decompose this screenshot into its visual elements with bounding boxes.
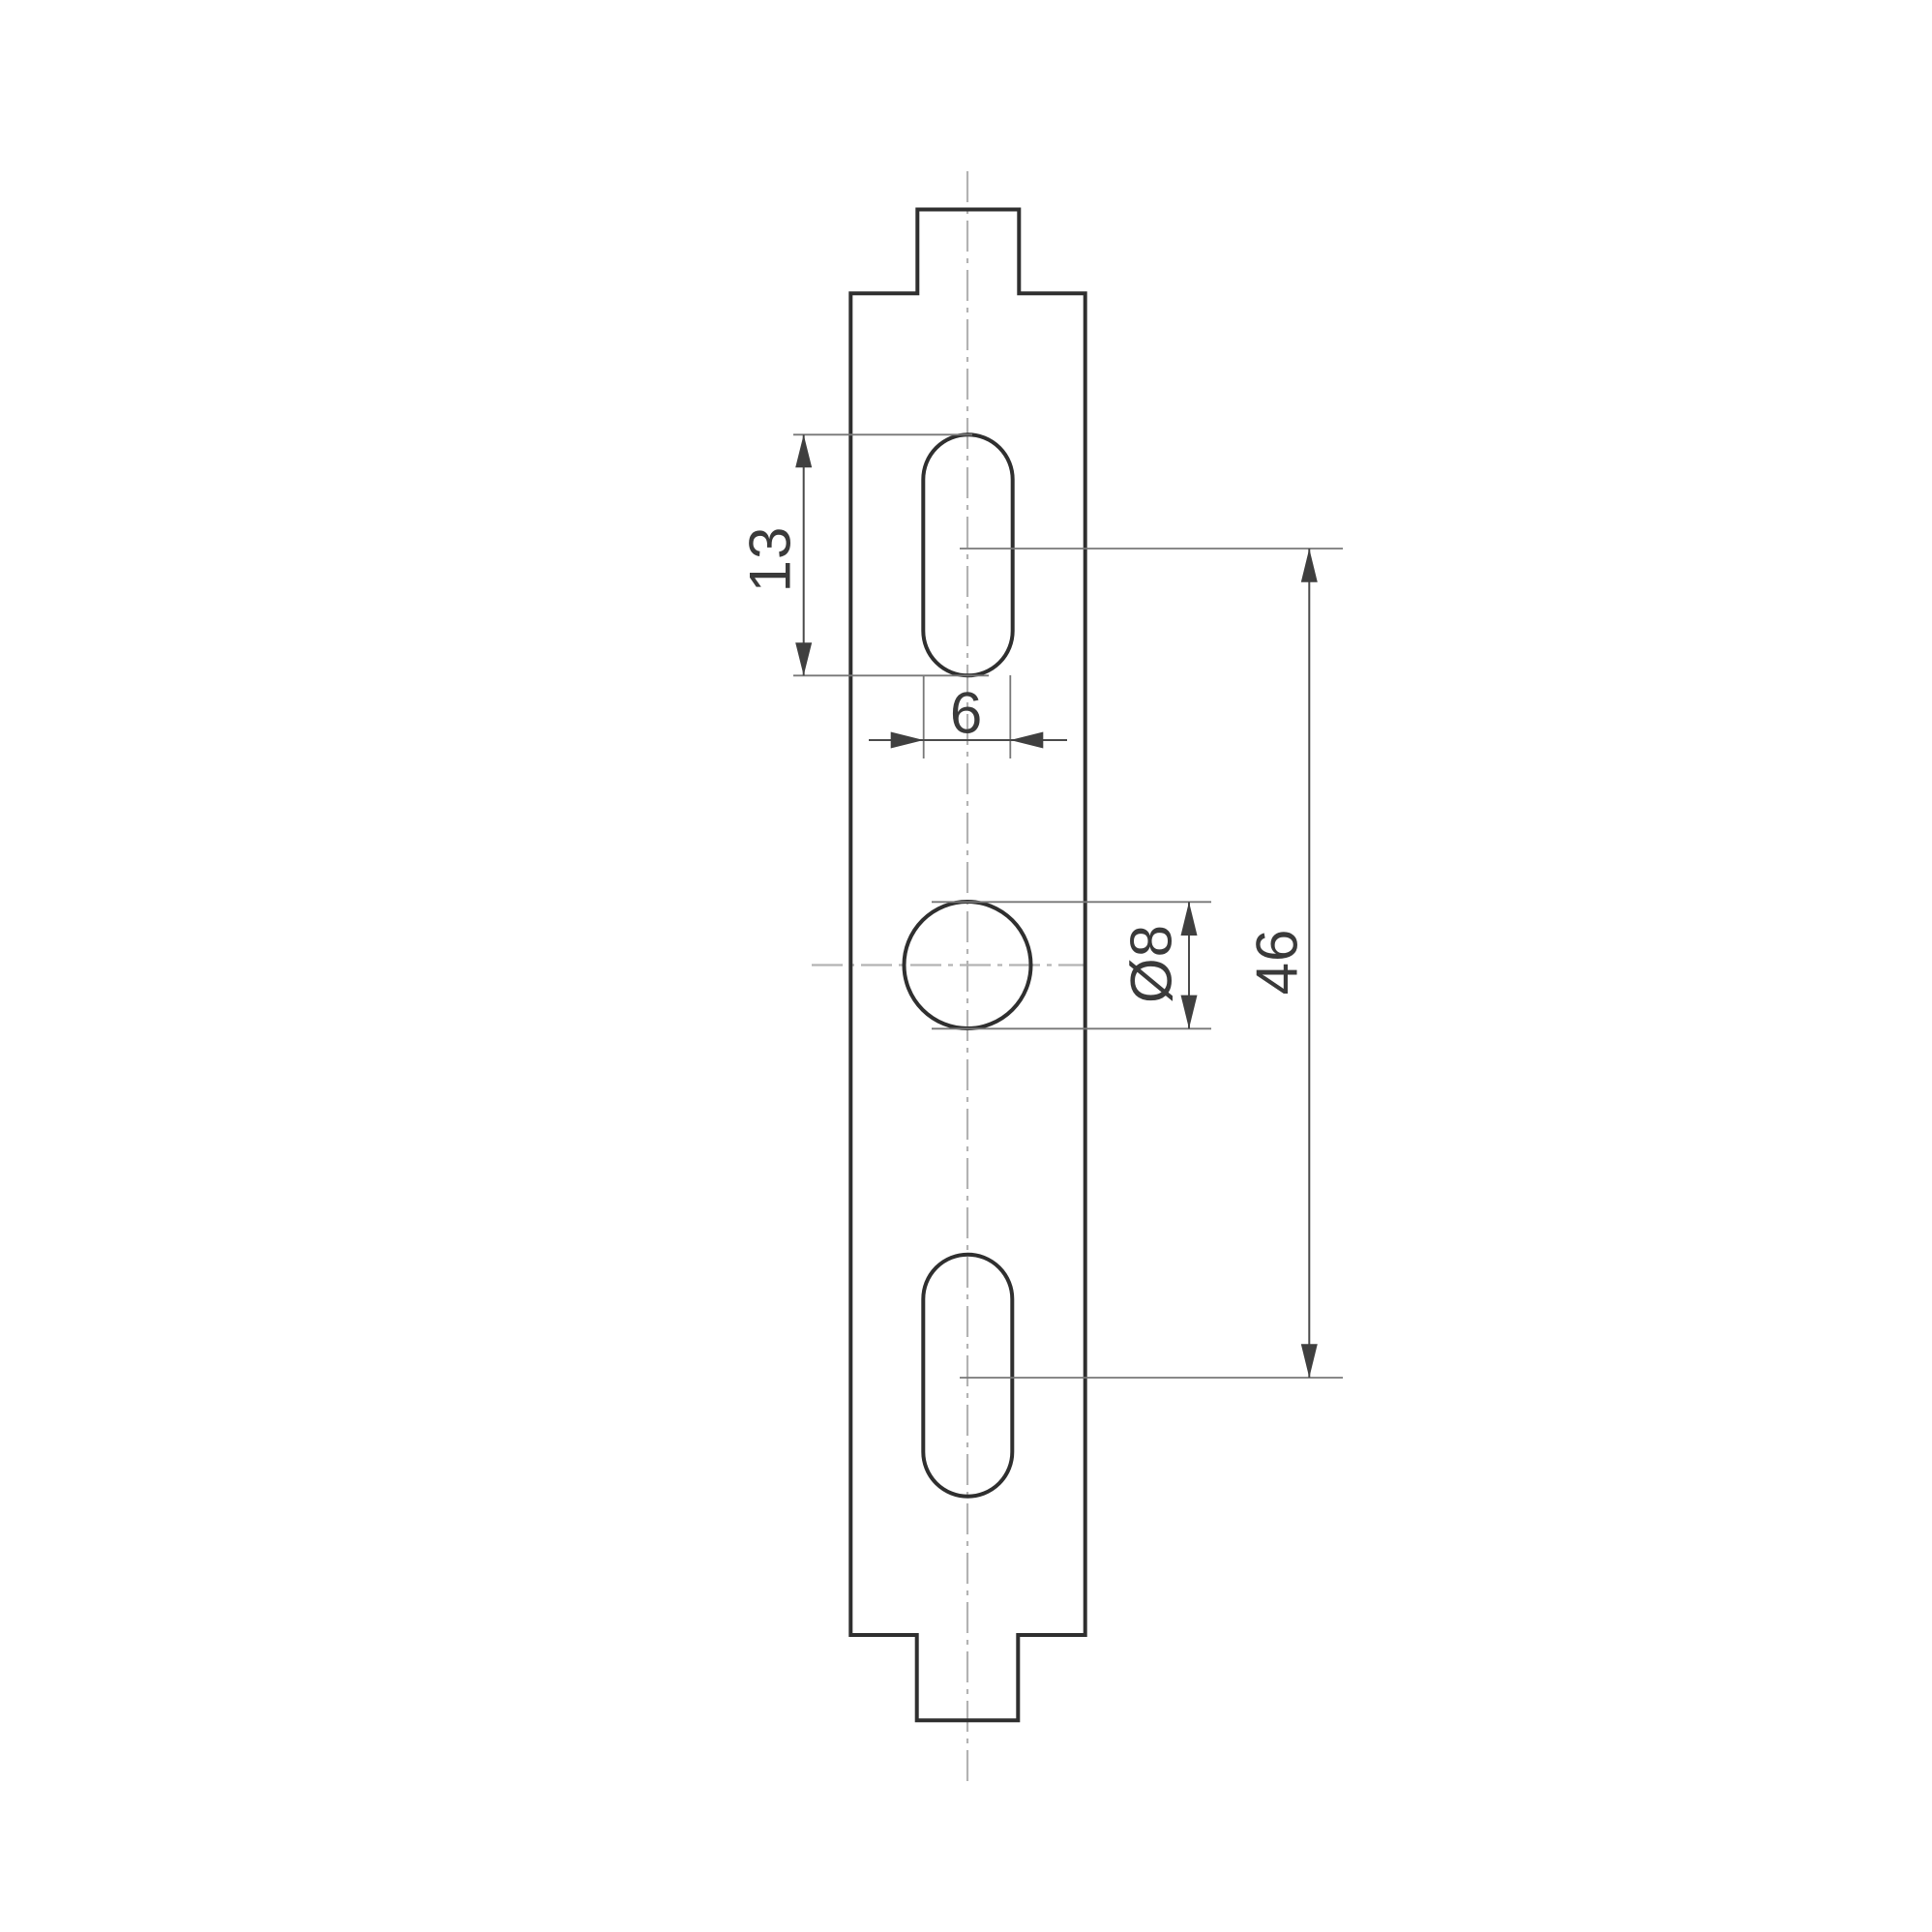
dim-label-6: 6 (950, 681, 983, 746)
dim-label-d8: Ø8 (1119, 924, 1184, 1003)
dimension-slot-length: 13 (738, 434, 990, 675)
arrow-left-icon (1010, 732, 1043, 749)
arrow-down-icon (1301, 1344, 1318, 1378)
dimension-slot-width: 6 (869, 675, 1067, 758)
dim-label-13: 13 (738, 526, 803, 593)
arrow-right-icon (891, 732, 924, 749)
dim-label-46: 46 (1245, 929, 1310, 996)
arrow-down-icon (795, 642, 812, 675)
arrow-up-icon (1301, 549, 1318, 582)
technical-drawing: 13 6 Ø8 46 (0, 0, 1932, 1932)
drawing-canvas: 13 6 Ø8 46 (0, 0, 1932, 1932)
arrow-up-icon (795, 434, 812, 467)
